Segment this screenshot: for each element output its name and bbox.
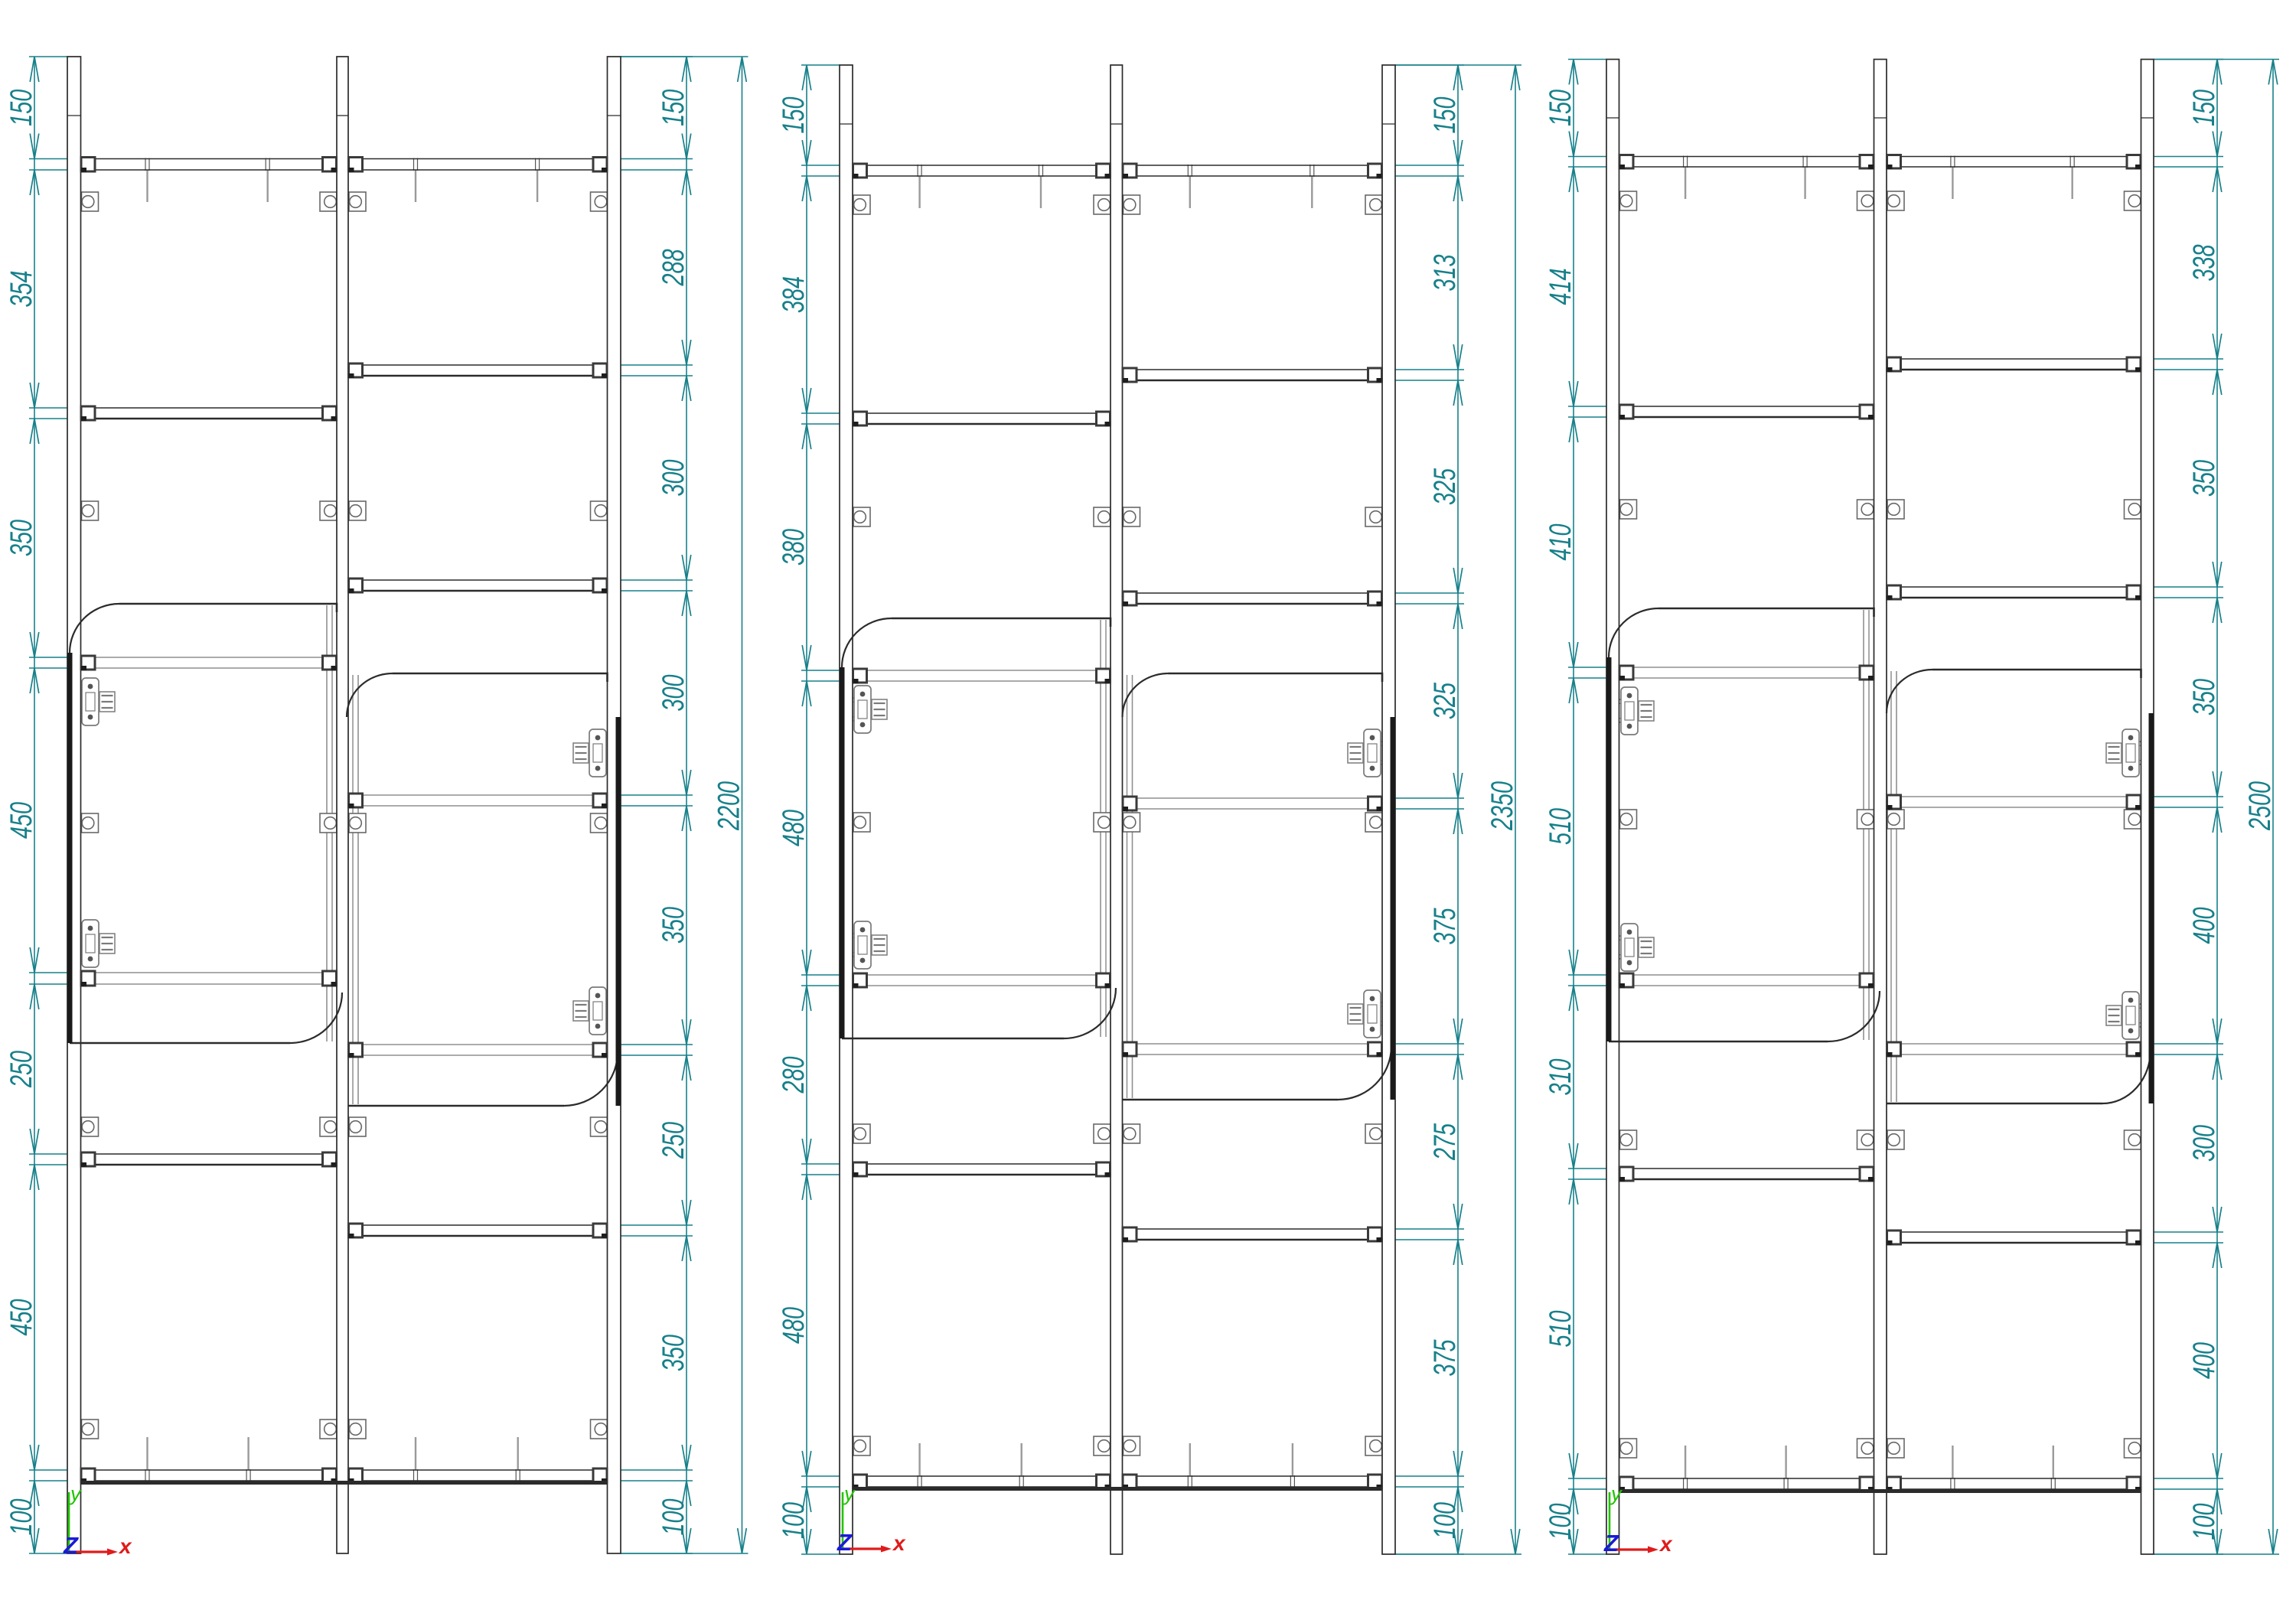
svg-text:375: 375	[1427, 1339, 1462, 1377]
svg-text:313: 313	[1427, 254, 1462, 292]
svg-text:300: 300	[2187, 1124, 2221, 1162]
svg-text:150: 150	[2187, 89, 2221, 126]
svg-text:450: 450	[4, 1299, 38, 1336]
svg-text:325: 325	[1427, 682, 1462, 719]
svg-text:510: 510	[1543, 1310, 1577, 1348]
svg-text:150: 150	[4, 89, 38, 126]
svg-text:100: 100	[2187, 1503, 2221, 1540]
svg-text:350: 350	[4, 519, 38, 556]
svg-text:384: 384	[776, 276, 810, 313]
svg-text:400: 400	[2187, 907, 2221, 944]
svg-text:510: 510	[1543, 807, 1577, 845]
svg-text:100: 100	[1543, 1503, 1577, 1540]
svg-text:y: y	[843, 1482, 856, 1505]
svg-text:y: y	[1609, 1482, 1623, 1505]
svg-text:380: 380	[776, 528, 810, 566]
svg-text:x: x	[1658, 1532, 1673, 1556]
svg-text:300: 300	[656, 459, 690, 497]
svg-text:100: 100	[656, 1498, 690, 1536]
svg-text:100: 100	[4, 1498, 38, 1536]
svg-text:450: 450	[4, 801, 38, 839]
svg-text:x: x	[892, 1531, 906, 1555]
svg-text:354: 354	[4, 270, 38, 307]
svg-text:2200: 2200	[712, 781, 746, 830]
svg-text:310: 310	[1543, 1058, 1577, 1096]
svg-text:400: 400	[2187, 1341, 2221, 1379]
svg-text:Z: Z	[837, 1529, 853, 1556]
svg-text:410: 410	[1543, 523, 1577, 561]
svg-text:100: 100	[776, 1501, 810, 1539]
svg-text:350: 350	[2187, 678, 2221, 715]
svg-text:150: 150	[1427, 96, 1462, 134]
svg-text:375: 375	[1427, 908, 1462, 945]
svg-text:414: 414	[1543, 268, 1577, 305]
svg-text:2350: 2350	[1485, 781, 1519, 830]
svg-text:250: 250	[4, 1050, 38, 1087]
svg-text:300: 300	[656, 674, 690, 712]
svg-text:350: 350	[2187, 459, 2221, 497]
svg-text:280: 280	[776, 1056, 810, 1094]
svg-text:480: 480	[776, 809, 810, 846]
svg-text:350: 350	[656, 906, 690, 944]
svg-text:275: 275	[1427, 1123, 1462, 1160]
svg-text:250: 250	[656, 1121, 690, 1159]
svg-text:325: 325	[1427, 468, 1462, 505]
svg-text:y: y	[69, 1482, 82, 1505]
svg-text:Z: Z	[63, 1532, 79, 1559]
svg-text:338: 338	[2187, 244, 2221, 282]
svg-text:x: x	[118, 1534, 132, 1558]
svg-text:Z: Z	[1603, 1530, 1619, 1556]
svg-text:150: 150	[776, 96, 810, 134]
svg-text:480: 480	[776, 1306, 810, 1344]
svg-text:150: 150	[656, 89, 690, 126]
svg-text:150: 150	[1543, 89, 1577, 126]
svg-text:100: 100	[1427, 1501, 1462, 1539]
svg-text:288: 288	[656, 249, 690, 286]
svg-text:2500: 2500	[2242, 781, 2277, 830]
svg-text:350: 350	[656, 1334, 690, 1371]
